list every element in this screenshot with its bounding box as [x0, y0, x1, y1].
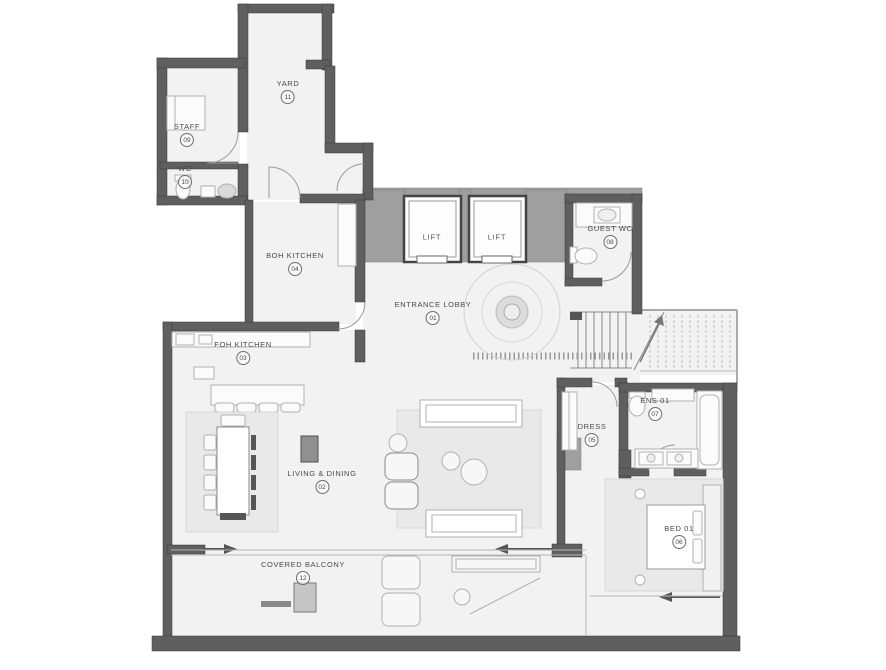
- room-label-ens-01: ENS 01 07: [640, 396, 669, 421]
- armchair: [385, 482, 418, 509]
- room-number-badge: 09: [180, 133, 194, 147]
- room-label-dress: DRESS 05: [578, 422, 607, 447]
- pillow: [693, 539, 702, 563]
- boh-counter: [338, 204, 356, 266]
- room-name: YARD: [277, 79, 300, 88]
- column: [301, 436, 318, 462]
- room-number-badge: 12: [296, 571, 310, 585]
- foh-appliance: [194, 367, 214, 379]
- pillow: [693, 511, 702, 535]
- room-name: STAFF: [174, 122, 200, 131]
- guest-wc-basin: [598, 209, 616, 221]
- dining-table: [217, 427, 249, 515]
- lift-2-door: [482, 256, 512, 263]
- lift-2-label: LIFT: [488, 233, 507, 242]
- side-table: [389, 434, 407, 452]
- room-number-badge: 08: [603, 235, 617, 249]
- room-label-yard: YARD 11: [277, 79, 300, 104]
- room-number-badge: 04: [288, 262, 302, 276]
- lift-1-shaft: [404, 196, 461, 262]
- room-label-guest-wc: GUEST WC 08: [587, 224, 632, 249]
- nightstand: [635, 489, 645, 499]
- sofa-bottom: [426, 510, 522, 537]
- room-name: GUEST WC: [587, 224, 632, 233]
- room-name: BOH KITCHEN: [266, 251, 324, 260]
- wc-basin: [218, 184, 236, 198]
- room-number-badge: 02: [315, 480, 329, 494]
- room-label-bed-01: BED 01 06: [664, 524, 693, 549]
- room-number-badge: 05: [585, 433, 599, 447]
- balcony-side-table: [454, 589, 470, 605]
- room-number-badge: 03: [236, 351, 250, 365]
- room-number-badge: 07: [648, 407, 662, 421]
- room-label-living-dining: LIVING & DINING 02: [287, 469, 356, 494]
- guest-wc-toilet: [575, 248, 597, 264]
- room-label-wc: WC 10: [178, 164, 192, 189]
- balcony-table: [294, 583, 316, 612]
- room-name: ENTRANCE LOBBY: [395, 300, 472, 309]
- sofa-top: [420, 400, 522, 427]
- room-name: LIVING & DINING: [287, 469, 356, 478]
- kitchen-island: [211, 385, 304, 405]
- room-name: FOH KITCHEN: [214, 340, 271, 349]
- room-number-badge: 11: [281, 90, 295, 104]
- floor-plan-canvas: YARD 11 STAFF 09 WC 10 BOH KITCHEN 04 LI…: [0, 0, 886, 670]
- armchair: [385, 453, 418, 480]
- room-number-badge: 01: [426, 311, 440, 325]
- room-label-foh-kitchen: FOH KITCHEN 03: [214, 340, 271, 365]
- room-label-covered-balcony: COVERED BALCONY 12: [261, 560, 345, 585]
- room-number-badge: 10: [178, 175, 192, 189]
- balcony-bench: [452, 556, 540, 572]
- headboard: [703, 485, 721, 591]
- coffee-table: [442, 452, 460, 470]
- lift-2-shaft: [469, 196, 526, 262]
- yard-floor: [247, 12, 368, 200]
- lounge-chair: [382, 593, 420, 626]
- floor-plan-drawing: [0, 0, 886, 670]
- room-number-badge: 06: [672, 535, 686, 549]
- nightstand: [635, 575, 645, 585]
- room-name: WC: [178, 164, 192, 173]
- coffee-table: [461, 459, 487, 485]
- room-label-boh-kitchen: BOH KITCHEN 04: [266, 251, 324, 276]
- room-label-entrance-lobby: ENTRANCE LOBBY 01: [395, 300, 472, 325]
- lounge-chair: [382, 556, 420, 589]
- room-name: ENS 01: [640, 396, 669, 405]
- lift-1-door: [417, 256, 447, 263]
- lift-1-label: LIFT: [423, 233, 442, 242]
- room-name: DRESS: [578, 422, 607, 431]
- stair-start-marker: [570, 312, 582, 320]
- room-name: COVERED BALCONY: [261, 560, 345, 569]
- bathtub: [697, 391, 722, 469]
- room-name: BED 01: [664, 524, 693, 533]
- room-label-staff: STAFF 09: [174, 122, 200, 147]
